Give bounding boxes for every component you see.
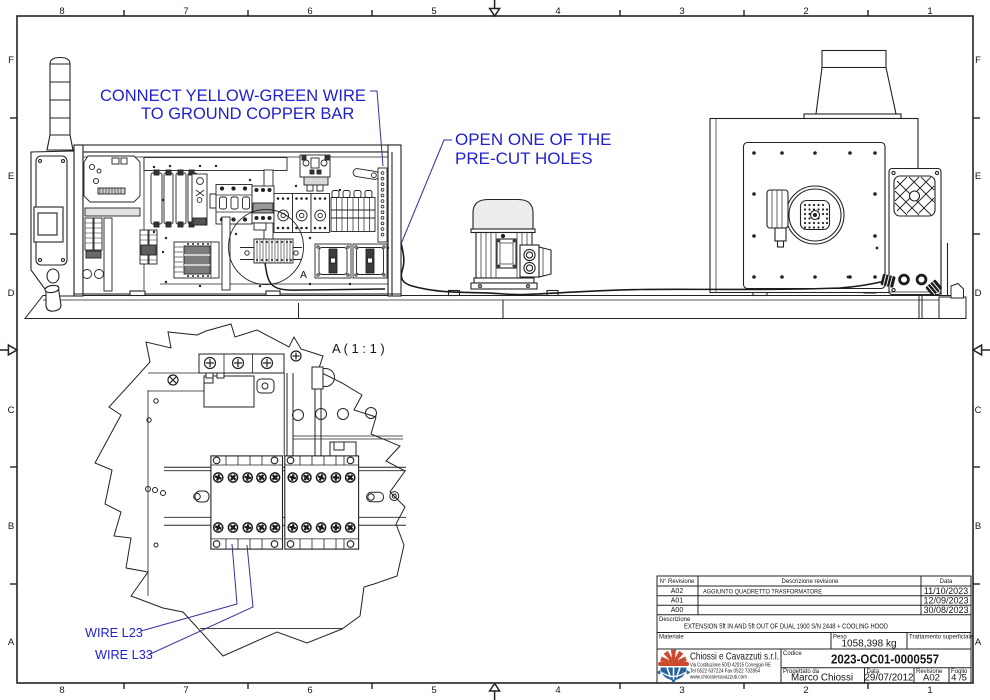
svg-text:WIRE L23: WIRE L23 xyxy=(85,626,143,640)
svg-text:AGGIUNTO QUADRETTO TRASFORMATO: AGGIUNTO QUADRETTO TRASFORMATORE xyxy=(703,589,822,596)
svg-text:Descrizione revisione: Descrizione revisione xyxy=(781,579,839,585)
svg-text:Chiossi e Cavazzuti s.r.l.: Chiossi e Cavazzuti s.r.l. xyxy=(690,652,779,663)
svg-text:www.chiossiecavazzuti.com: www.chiossiecavazzuti.com xyxy=(690,675,747,681)
svg-text:D: D xyxy=(8,288,15,299)
svg-text:6: 6 xyxy=(307,6,312,17)
svg-text:30/08/2023: 30/08/2023 xyxy=(923,605,968,615)
svg-text:D: D xyxy=(975,288,982,299)
svg-text:A ( 1 : 1 ): A ( 1 : 1 ) xyxy=(332,341,385,356)
svg-text:A02: A02 xyxy=(923,673,940,684)
svg-text:A02: A02 xyxy=(671,588,684,595)
svg-text:1: 1 xyxy=(927,6,932,17)
svg-text:B: B xyxy=(975,521,981,532)
svg-text:OPEN ONE OF THE: OPEN ONE OF THE xyxy=(455,130,612,149)
svg-text:4 /5: 4 /5 xyxy=(951,673,967,684)
svg-text:7: 7 xyxy=(183,685,188,696)
svg-text:7: 7 xyxy=(183,6,188,17)
svg-text:EXTENSION 5ft IN AND 5ft OUT O: EXTENSION 5ft IN AND 5ft OUT OF DUAL 190… xyxy=(684,624,888,631)
svg-text:CONNECT YELLOW-GREEN WIRE: CONNECT YELLOW-GREEN WIRE xyxy=(100,87,366,105)
svg-text:A: A xyxy=(300,269,307,281)
svg-text:Codice: Codice xyxy=(783,651,802,657)
svg-text:B: B xyxy=(8,521,14,532)
svg-text:1: 1 xyxy=(927,685,932,696)
svg-text:C: C xyxy=(8,405,15,416)
svg-text:8: 8 xyxy=(59,6,64,17)
svg-text:4: 4 xyxy=(555,6,560,17)
svg-text:PRE-CUT HOLES: PRE-CUT HOLES xyxy=(455,149,593,168)
svg-text:Descrizione: Descrizione xyxy=(659,617,691,623)
svg-text:29/07/2012: 29/07/2012 xyxy=(864,673,913,684)
svg-text:E: E xyxy=(975,171,981,182)
svg-text:Marco Chiossi: Marco Chiossi xyxy=(791,673,853,684)
svg-text:A: A xyxy=(8,637,15,648)
svg-text:1058,398 kg: 1058,398 kg xyxy=(841,639,896,650)
svg-text:WIRE L33: WIRE L33 xyxy=(95,648,153,662)
svg-text:TO GROUND COPPER BAR: TO GROUND COPPER BAR xyxy=(141,105,354,123)
svg-text:11/10/2023: 11/10/2023 xyxy=(924,586,968,596)
svg-text:F: F xyxy=(8,55,14,66)
svg-text:Data: Data xyxy=(940,579,953,585)
svg-text:A: A xyxy=(975,637,982,648)
svg-text:N° Revisione: N° Revisione xyxy=(660,579,695,585)
svg-text:5: 5 xyxy=(431,6,436,17)
svg-text:5: 5 xyxy=(431,685,436,696)
svg-text:4: 4 xyxy=(555,685,560,696)
svg-text:3: 3 xyxy=(679,6,684,17)
svg-text:2: 2 xyxy=(803,6,808,17)
svg-text:8: 8 xyxy=(59,685,64,696)
svg-text:Materiale: Materiale xyxy=(659,635,684,641)
svg-text:12/09/2023: 12/09/2023 xyxy=(923,596,968,606)
svg-text:A01: A01 xyxy=(671,598,684,605)
svg-text:3: 3 xyxy=(679,685,684,696)
svg-text:2: 2 xyxy=(803,685,808,696)
svg-text:F: F xyxy=(975,55,981,66)
svg-text:C: C xyxy=(975,405,982,416)
svg-text:6: 6 xyxy=(307,685,312,696)
svg-text:2023-OC01-0000557: 2023-OC01-0000557 xyxy=(831,652,939,667)
svg-text:E: E xyxy=(8,171,14,182)
svg-text:A00: A00 xyxy=(671,607,684,614)
svg-text:Trattamento superficiale: Trattamento superficiale xyxy=(909,635,974,641)
